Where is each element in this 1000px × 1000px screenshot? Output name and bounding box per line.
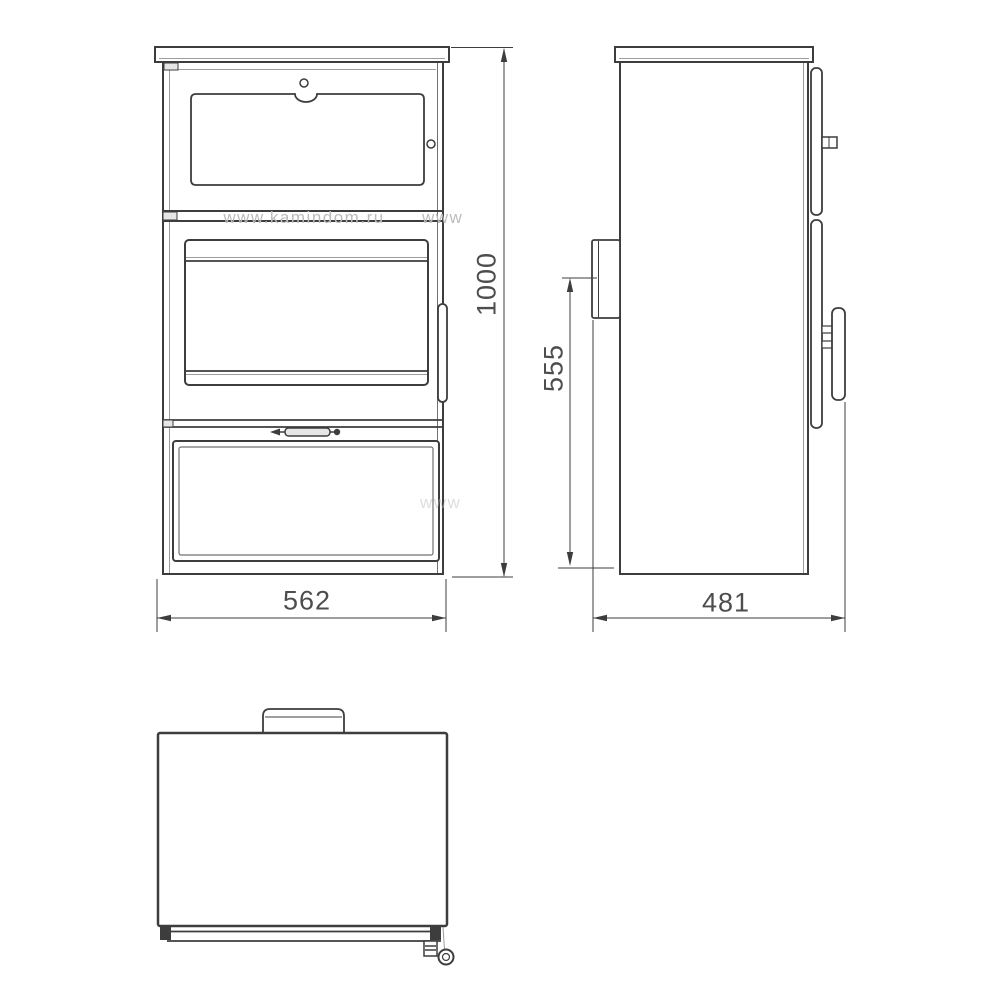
side-view	[592, 47, 845, 574]
front-view	[155, 47, 449, 574]
top-body	[158, 733, 447, 926]
top-handle-stem-line	[443, 927, 445, 950]
top-left-foot	[160, 927, 171, 940]
watermark-text-partial: www	[422, 208, 463, 228]
depth-dim-label: 481	[702, 588, 750, 619]
depth-arrow-left	[593, 615, 607, 621]
height-arrow-top	[501, 48, 507, 62]
depth-arrow-right	[831, 615, 845, 621]
watermark-text-faint: www	[420, 493, 461, 513]
width-arrow-left	[157, 615, 171, 621]
front-door-handle	[438, 304, 447, 402]
width-arrow-right	[432, 615, 446, 621]
front-latch-hole	[300, 79, 308, 87]
side-body	[620, 62, 808, 574]
flue-height-dim-label: 555	[539, 344, 570, 392]
top-right-foot	[430, 926, 441, 940]
top-view	[158, 709, 454, 965]
flue-arrow-bottom	[567, 552, 573, 566]
front-top-plate	[155, 47, 449, 62]
front-hinge-top	[164, 63, 178, 70]
watermark-text: www.kamindom.ru	[223, 208, 384, 228]
flue-arrow-top	[567, 278, 573, 292]
top-flue-collar	[263, 709, 344, 733]
front-upper-door-knob	[427, 140, 435, 148]
front-hinge-middle	[163, 212, 177, 220]
technical-drawing-canvas: 1000 562 481 555 www.kamindom.ru www www	[0, 0, 1000, 1000]
side-flue-outlet	[592, 240, 620, 318]
side-upper-door-panel	[811, 68, 822, 215]
front-hinge-bottom	[163, 420, 173, 427]
side-lower-door-panel	[811, 220, 822, 428]
side-top-plate	[615, 47, 813, 62]
top-handle-knob	[424, 941, 437, 956]
air-slider-knob	[285, 428, 330, 436]
width-dim-label: 562	[283, 586, 331, 617]
side-door-handle	[832, 308, 845, 400]
stove-dimension-drawing	[0, 0, 1000, 1000]
front-ash-panel	[173, 441, 439, 561]
height-dim-label: 1000	[472, 252, 503, 316]
height-arrow-bottom	[501, 563, 507, 577]
top-handle-ring-inner	[443, 954, 450, 961]
air-slider-arrow-right-icon	[334, 429, 340, 435]
front-upper-door-glass	[191, 94, 424, 185]
